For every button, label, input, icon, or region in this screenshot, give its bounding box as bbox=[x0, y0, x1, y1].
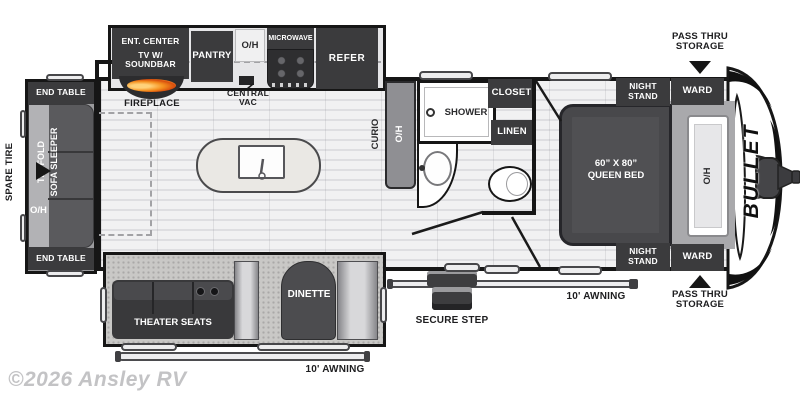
bottom-wall-window bbox=[558, 266, 602, 275]
dinette-table bbox=[281, 261, 336, 340]
fireplace-label: FIREPLACE bbox=[110, 99, 194, 109]
sofa-overhead-label: O/H bbox=[30, 205, 60, 217]
headboard-overhead-label: O/H bbox=[702, 136, 714, 216]
range-stove bbox=[267, 49, 314, 89]
kitchen-overhead-cabinet: O/H bbox=[235, 29, 265, 62]
entry-door-threshold bbox=[444, 263, 480, 272]
rear-wall-window-bottom bbox=[20, 214, 26, 242]
dinette-label: DINETTE bbox=[278, 289, 340, 300]
central-vac-label: CENTRAL VAC bbox=[220, 89, 276, 108]
awning-rail-rear bbox=[118, 352, 367, 361]
end-table-bottom: END TABLE bbox=[28, 248, 94, 270]
theater-seat-divider bbox=[152, 282, 154, 314]
queen-bed-label: 60” X 80” QUEEN BED bbox=[564, 158, 668, 182]
wall-jog-horizontal bbox=[95, 60, 113, 64]
secure-step-lower bbox=[432, 287, 472, 310]
awning-end-cap bbox=[364, 351, 370, 362]
bath-faucet-icon bbox=[419, 165, 425, 171]
bullet-logo: BULLET bbox=[746, 106, 758, 236]
linen-cabinet: LINEN bbox=[491, 120, 533, 145]
cup-holder-icon bbox=[210, 287, 219, 296]
bedroom-window bbox=[548, 72, 612, 81]
flame-icon bbox=[127, 79, 176, 92]
island-sink bbox=[238, 145, 285, 179]
night-stand-bottom: NIGHT STAND bbox=[616, 243, 670, 271]
wardrobe-bottom: WARD bbox=[671, 244, 724, 271]
theater-seats: THEATER SEATS bbox=[112, 280, 234, 339]
hitch-tip bbox=[792, 171, 800, 183]
stove-knob-row bbox=[272, 83, 310, 87]
awning-end-cap bbox=[115, 351, 121, 362]
theater-seat-divider bbox=[192, 282, 194, 314]
bathroom-south-wall bbox=[482, 211, 536, 215]
shower: SHOWER bbox=[417, 80, 496, 144]
bathroom-bedroom-wall bbox=[532, 77, 536, 215]
bath-sink bbox=[423, 151, 452, 186]
night-stand-top: NIGHT STAND bbox=[616, 78, 670, 106]
dinette-bench-left bbox=[234, 261, 259, 340]
dinette-bench-right bbox=[337, 261, 378, 340]
slide-wall-tab-right bbox=[380, 287, 387, 323]
rear-slide-flange-bottom bbox=[46, 270, 84, 277]
central-vac-unit bbox=[239, 76, 254, 85]
microwave: MICROWAVE bbox=[267, 28, 314, 49]
entertainment-center: ENT. CENTER TV W/ SOUNDBAR bbox=[112, 28, 189, 79]
pantry: PANTRY bbox=[191, 31, 233, 82]
curio-label: CURIO bbox=[370, 94, 382, 174]
shower-head-icon bbox=[426, 108, 435, 117]
closet: CLOSET bbox=[488, 79, 535, 108]
slide-wall-tab-left bbox=[100, 287, 107, 323]
rear-slide-flange-top bbox=[46, 74, 84, 81]
wardrobe-top: WARD bbox=[671, 78, 724, 105]
shower-label: SHOWER bbox=[438, 107, 494, 118]
bottom-wall-window bbox=[484, 265, 520, 274]
bathroom-window bbox=[419, 71, 473, 80]
dealer-watermark: ©2026 Ansley RV bbox=[8, 368, 328, 392]
toilet-bowl-inner bbox=[506, 172, 528, 196]
curio-overhead-label: O/H bbox=[394, 94, 406, 174]
slide-skirt-right bbox=[257, 343, 350, 351]
awning-end-cap bbox=[387, 279, 393, 289]
end-table-top: END TABLE bbox=[28, 82, 94, 104]
spare-tire-arrow-icon bbox=[36, 162, 51, 180]
slide-skirt-left bbox=[121, 343, 177, 351]
secure-step-upper bbox=[427, 271, 477, 287]
refrigerator: REFER bbox=[316, 28, 378, 89]
hitch-cone bbox=[778, 165, 793, 189]
theater-seats-label: THEATER SEATS bbox=[116, 317, 230, 328]
cup-holder-icon bbox=[196, 287, 205, 296]
awning-end-cap bbox=[629, 279, 638, 289]
rear-wall-window-top bbox=[20, 110, 26, 138]
rv-floorplan: BULLET END TABLE TRI-FOLD SOFA SLEEPER O… bbox=[0, 0, 800, 400]
